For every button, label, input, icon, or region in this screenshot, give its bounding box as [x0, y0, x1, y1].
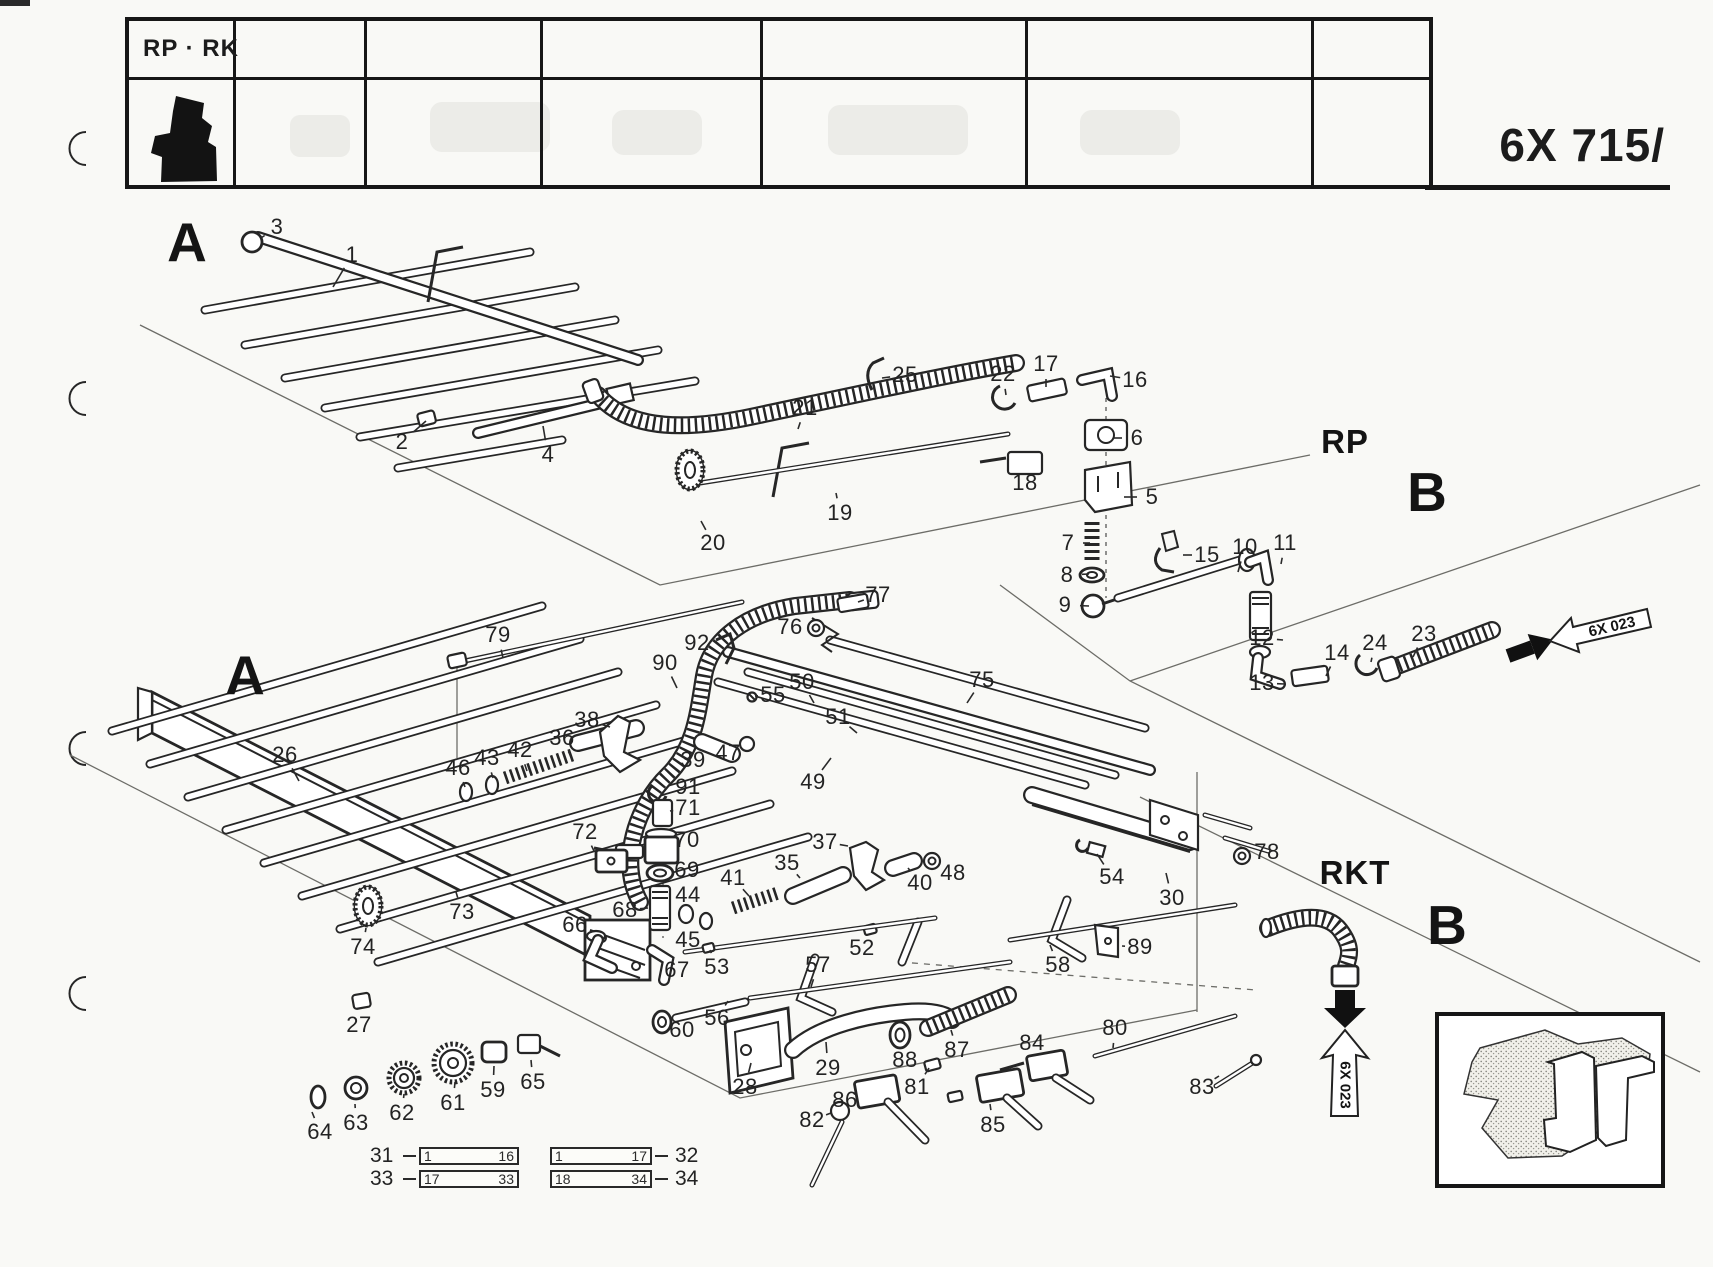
header-column-line	[760, 21, 763, 185]
leader-line-35	[797, 874, 800, 878]
header-divider	[129, 77, 1429, 80]
exploded-diagram	[0, 0, 1713, 1267]
legend-row: 31 1 16 1 17 32	[370, 1146, 705, 1166]
leader-line-80	[1113, 1043, 1114, 1048]
leader-line-85	[990, 1104, 991, 1110]
page-code: 6X 715/	[1450, 118, 1665, 172]
header-column-line	[540, 21, 543, 185]
leader-line-42	[525, 764, 527, 771]
legend-strip-box: 18 34	[550, 1170, 652, 1188]
legend-strip-box: 17 33	[419, 1170, 519, 1188]
legend-strip-box: 1 16	[419, 1147, 519, 1165]
rkt-hose-group	[1261, 918, 1368, 1116]
leader-line-25	[882, 377, 890, 378]
leader-line-41	[743, 889, 749, 896]
leader-line-49	[822, 758, 831, 770]
strip-end: 16	[498, 1148, 514, 1164]
leader-line-64	[312, 1112, 314, 1118]
boom-assembly-top	[205, 232, 1651, 686]
leader-line-4	[543, 426, 545, 440]
strip-start: 18	[555, 1171, 571, 1187]
strip-end: 34	[631, 1171, 647, 1187]
leader-line-61	[454, 1082, 455, 1088]
leader-line-30	[1166, 873, 1168, 883]
header-column-line	[364, 21, 367, 185]
legend-dash	[403, 1155, 416, 1157]
leader-line-58	[1050, 945, 1052, 951]
black-arrow-right	[1503, 626, 1558, 669]
strip-end: 33	[498, 1171, 514, 1187]
strip-start: 1	[424, 1148, 432, 1164]
leader-line-12	[1277, 639, 1283, 640]
legend-dash	[403, 1178, 416, 1180]
leader-line-90	[671, 677, 677, 688]
leader-line-11	[1281, 558, 1282, 564]
boom-assembly-middle	[112, 590, 1268, 1185]
inset-detail-box	[1437, 1014, 1663, 1186]
leader-line-37	[840, 845, 848, 846]
ref-arrow-up	[1322, 1030, 1368, 1116]
catalog-page: { "page": { "header_label": "RP · RK", "…	[0, 0, 1713, 1267]
strip-start: 17	[424, 1171, 440, 1187]
legend-ref: 31	[370, 1144, 400, 1168]
leader-line-72	[591, 846, 594, 851]
leader-line-71	[670, 810, 673, 811]
legend-ref: 33	[370, 1167, 400, 1191]
legend-ref: 32	[675, 1144, 705, 1168]
leader-line-74	[365, 928, 366, 932]
legend-dash	[655, 1155, 668, 1157]
model-code-label: RP · RK	[143, 35, 239, 63]
header-column-line	[1025, 21, 1028, 185]
black-arrow-down	[1324, 990, 1366, 1028]
leader-line-82	[826, 1113, 831, 1115]
leader-line-87	[951, 1030, 953, 1036]
legend-strip-box: 1 17	[550, 1147, 652, 1165]
leader-line-21	[798, 422, 800, 429]
leader-line-65	[531, 1060, 532, 1067]
legend-row: 33 17 33 18 34 34	[370, 1169, 705, 1189]
ref-arrow-left	[1550, 609, 1651, 652]
leader-line-68	[640, 908, 648, 909]
header-baseline-extension	[1425, 185, 1670, 190]
leader-line-19	[836, 493, 837, 498]
leader-line-75	[967, 693, 974, 703]
leader-line-20	[701, 521, 706, 530]
leader-line-24	[1371, 658, 1372, 662]
legend-ref: 34	[675, 1167, 705, 1191]
leader-line-22	[1005, 389, 1006, 395]
header-column-line	[1311, 21, 1314, 185]
strip-end: 17	[631, 1148, 647, 1164]
legend-strips: 31 1 16 1 17 32 33 17 33 18 34 34	[370, 1146, 705, 1192]
legend-dash	[655, 1178, 668, 1180]
leader-line-51	[849, 727, 857, 733]
leader-line-83	[1215, 1076, 1219, 1079]
header-table: RP · RK	[125, 17, 1433, 189]
leader-line-50	[809, 695, 814, 703]
leader-line-29	[826, 1042, 827, 1053]
strip-start: 1	[555, 1148, 563, 1164]
